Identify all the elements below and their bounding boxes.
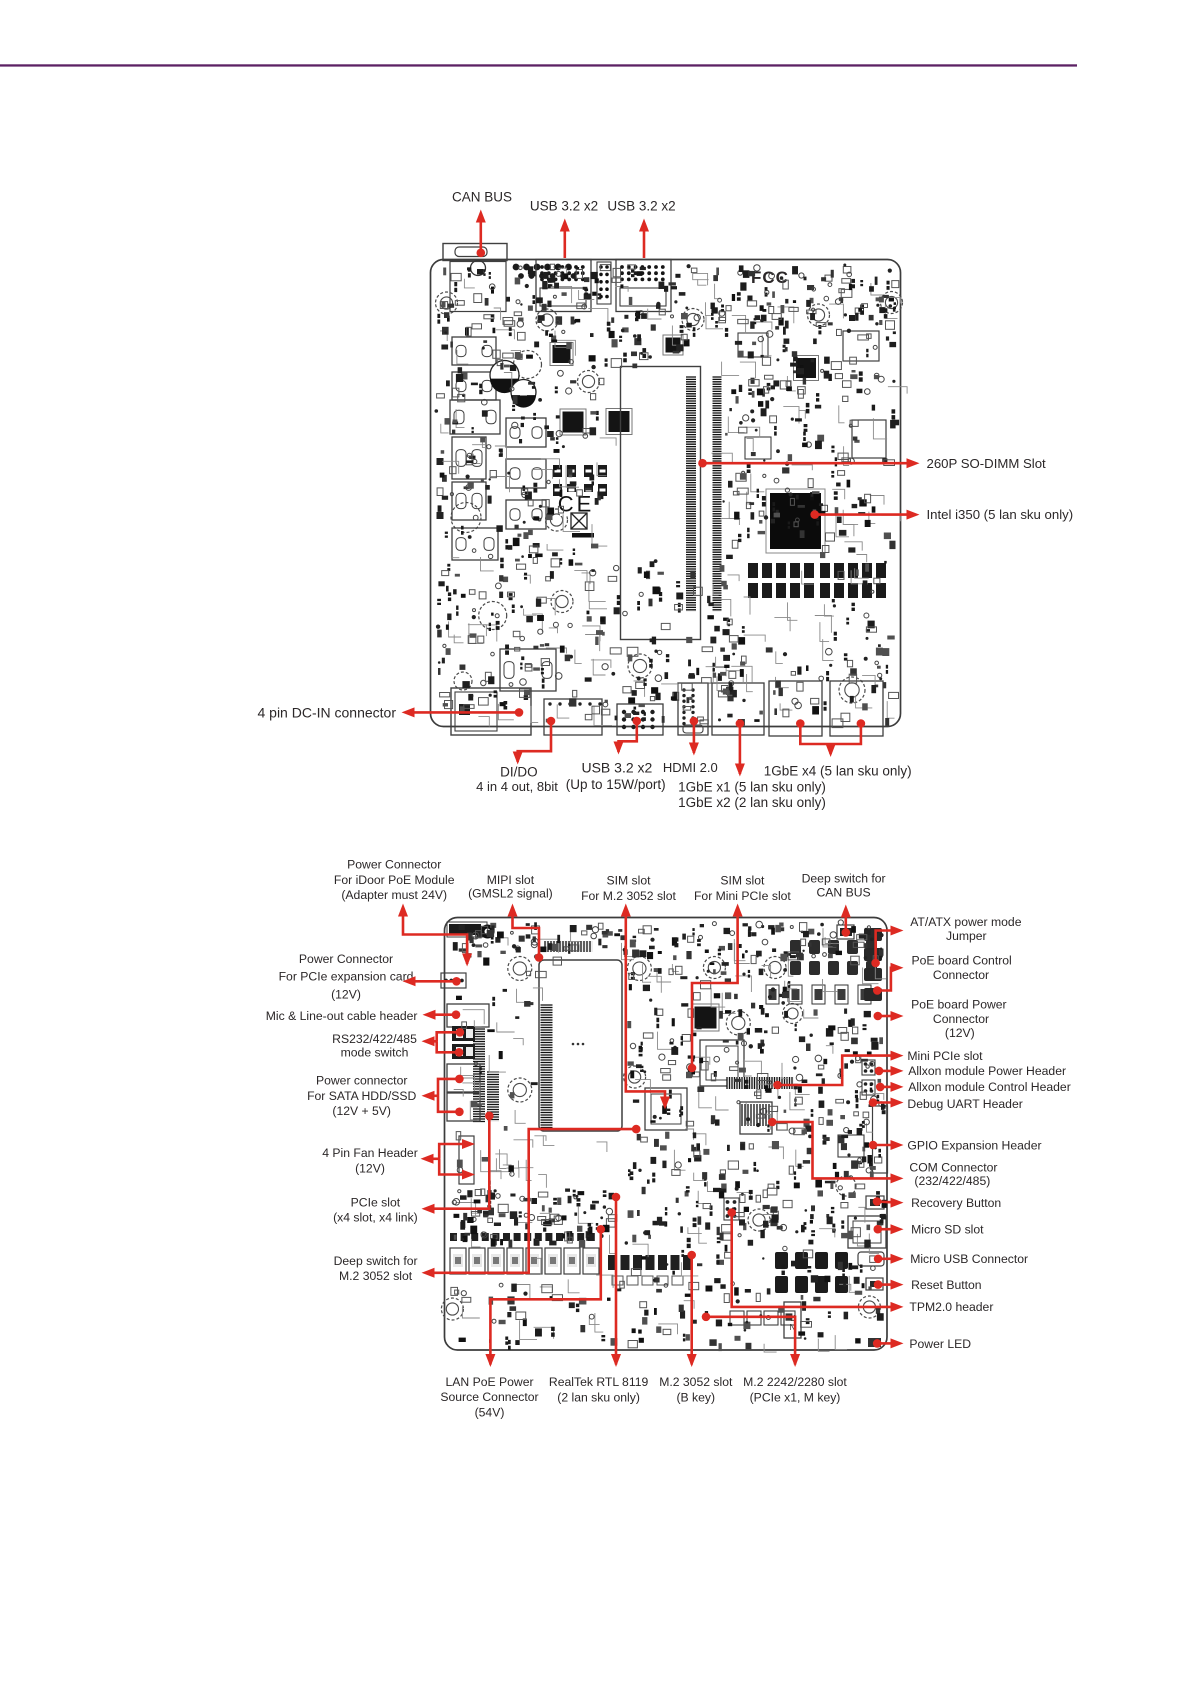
svg-text:1GbE x4 (5 lan sku only): 1GbE x4 (5 lan sku only) — [764, 764, 912, 779]
svg-text:Jumper: Jumper — [946, 929, 987, 943]
svg-text:(PCIe x1, M key): (PCIe x1, M key) — [750, 1391, 841, 1405]
svg-text:CAN BUS: CAN BUS — [452, 190, 512, 205]
svg-text:Intel i350 (5 lan sku only): Intel i350 (5 lan sku only) — [927, 507, 1074, 522]
svg-text:COM Connector: COM Connector — [909, 1161, 997, 1175]
svg-text:Deep switch for: Deep switch for — [334, 1254, 418, 1268]
svg-text:(12V): (12V) — [945, 1026, 975, 1040]
svg-text:Power Connector: Power Connector — [347, 857, 441, 871]
svg-text:4 in 4 out, 8bit: 4 in 4 out, 8bit — [476, 779, 558, 794]
svg-text:M.2 2242/2280 slot: M.2 2242/2280 slot — [743, 1375, 847, 1389]
svg-text:260P SO-DIMM Slot: 260P SO-DIMM Slot — [927, 456, 1047, 471]
svg-text:USB 3.2 x2: USB 3.2 x2 — [607, 199, 675, 214]
svg-text:TPM2.0 header: TPM2.0 header — [909, 1300, 993, 1314]
svg-text:Mic & Line-out cable header: Mic & Line-out cable header — [266, 1009, 418, 1023]
svg-text:CAN BUS: CAN BUS — [817, 886, 871, 900]
svg-text:Micro USB Connector: Micro USB Connector — [910, 1252, 1028, 1266]
svg-text:MIPI slot: MIPI slot — [487, 873, 535, 887]
svg-text:Reset Button: Reset Button — [911, 1278, 981, 1292]
svg-text:Recovery Button: Recovery Button — [911, 1196, 1001, 1210]
svg-text:SIM slot: SIM slot — [606, 874, 651, 888]
svg-text:HDMI 2.0: HDMI 2.0 — [663, 760, 718, 775]
svg-text:Allxon module Control Header: Allxon module Control Header — [908, 1080, 1071, 1094]
svg-text:4 Pin Fan Header: 4 Pin Fan Header — [322, 1146, 418, 1160]
svg-text:(54V): (54V) — [475, 1405, 505, 1419]
svg-text:1GbE x1 (5 lan sku only): 1GbE x1 (5 lan sku only) — [678, 779, 826, 794]
svg-text:USB 3.2 x2: USB 3.2 x2 — [581, 760, 652, 776]
svg-text:DI/DO: DI/DO — [500, 765, 538, 780]
svg-text:(12V + 5V): (12V + 5V) — [332, 1104, 391, 1118]
svg-text:Connector: Connector — [933, 1012, 989, 1026]
svg-text:(2 lan sku only): (2 lan sku only) — [557, 1391, 640, 1405]
svg-text:RealTek RTL 8119: RealTek RTL 8119 — [549, 1375, 649, 1389]
svg-text:(Up to 15W/port): (Up to 15W/port) — [566, 777, 666, 792]
svg-text:M.2 3052 slot: M.2 3052 slot — [659, 1375, 733, 1389]
svg-text:Connector: Connector — [933, 968, 989, 982]
svg-text:Allxon module Power Header: Allxon module Power Header — [908, 1064, 1066, 1078]
svg-text:Power Connector: Power Connector — [299, 952, 393, 966]
svg-text:Debug UART Header: Debug UART Header — [907, 1097, 1022, 1111]
svg-text:For SATA HDD/SSD: For SATA HDD/SSD — [307, 1089, 416, 1103]
svg-text:GPIO Expansion Header: GPIO Expansion Header — [907, 1138, 1041, 1152]
svg-text:(B key): (B key) — [676, 1391, 715, 1405]
svg-text:(12V): (12V) — [331, 987, 361, 1001]
svg-text:PoE board Power: PoE board Power — [911, 998, 1007, 1012]
svg-text:4 pin DC-IN connector: 4 pin DC-IN connector — [257, 704, 396, 720]
svg-text:Mini PCIe slot: Mini PCIe slot — [907, 1049, 983, 1063]
svg-text:1GbE x2 (2 lan sku only): 1GbE x2 (2 lan sku only) — [678, 795, 826, 810]
svg-text:USB 3.2 x2: USB 3.2 x2 — [530, 199, 598, 214]
svg-text:Power LED: Power LED — [909, 1337, 971, 1351]
svg-text:For PCIe expansion card: For PCIe expansion card — [279, 970, 414, 984]
svg-text:Power connector: Power connector — [316, 1074, 407, 1088]
svg-text:Deep switch for: Deep switch for — [802, 871, 886, 885]
svg-text:mode switch: mode switch — [341, 1046, 409, 1060]
svg-text:For Mini PCIe slot: For Mini PCIe slot — [694, 889, 791, 903]
svg-text:(x4 slot, x4 link): (x4 slot, x4 link) — [333, 1210, 418, 1224]
svg-text:RS232/422/485: RS232/422/485 — [332, 1032, 417, 1046]
svg-text:(12V): (12V) — [355, 1161, 385, 1175]
svg-text:For iDoor PoE Module: For iDoor PoE Module — [334, 873, 455, 887]
svg-text:AT/ATX power mode: AT/ATX power mode — [910, 915, 1022, 929]
svg-text:Micro SD slot: Micro SD slot — [911, 1223, 984, 1237]
svg-text:SIM slot: SIM slot — [720, 874, 765, 888]
svg-text:Source Connector: Source Connector — [440, 1390, 538, 1404]
svg-text:LAN PoE Power: LAN PoE Power — [445, 1375, 533, 1389]
svg-text:(232/422/485): (232/422/485) — [914, 1174, 990, 1188]
svg-text:(GMSL2 signal): (GMSL2 signal) — [468, 887, 553, 901]
svg-text:For M.2 3052 slot: For M.2 3052 slot — [581, 889, 676, 903]
svg-text:PCIe slot: PCIe slot — [351, 1195, 401, 1209]
svg-text:(Adapter must 24V): (Adapter must 24V) — [341, 888, 447, 902]
svg-text:M.2 3052 slot: M.2 3052 slot — [339, 1269, 413, 1283]
svg-text:PoE board Control: PoE board Control — [912, 954, 1012, 968]
